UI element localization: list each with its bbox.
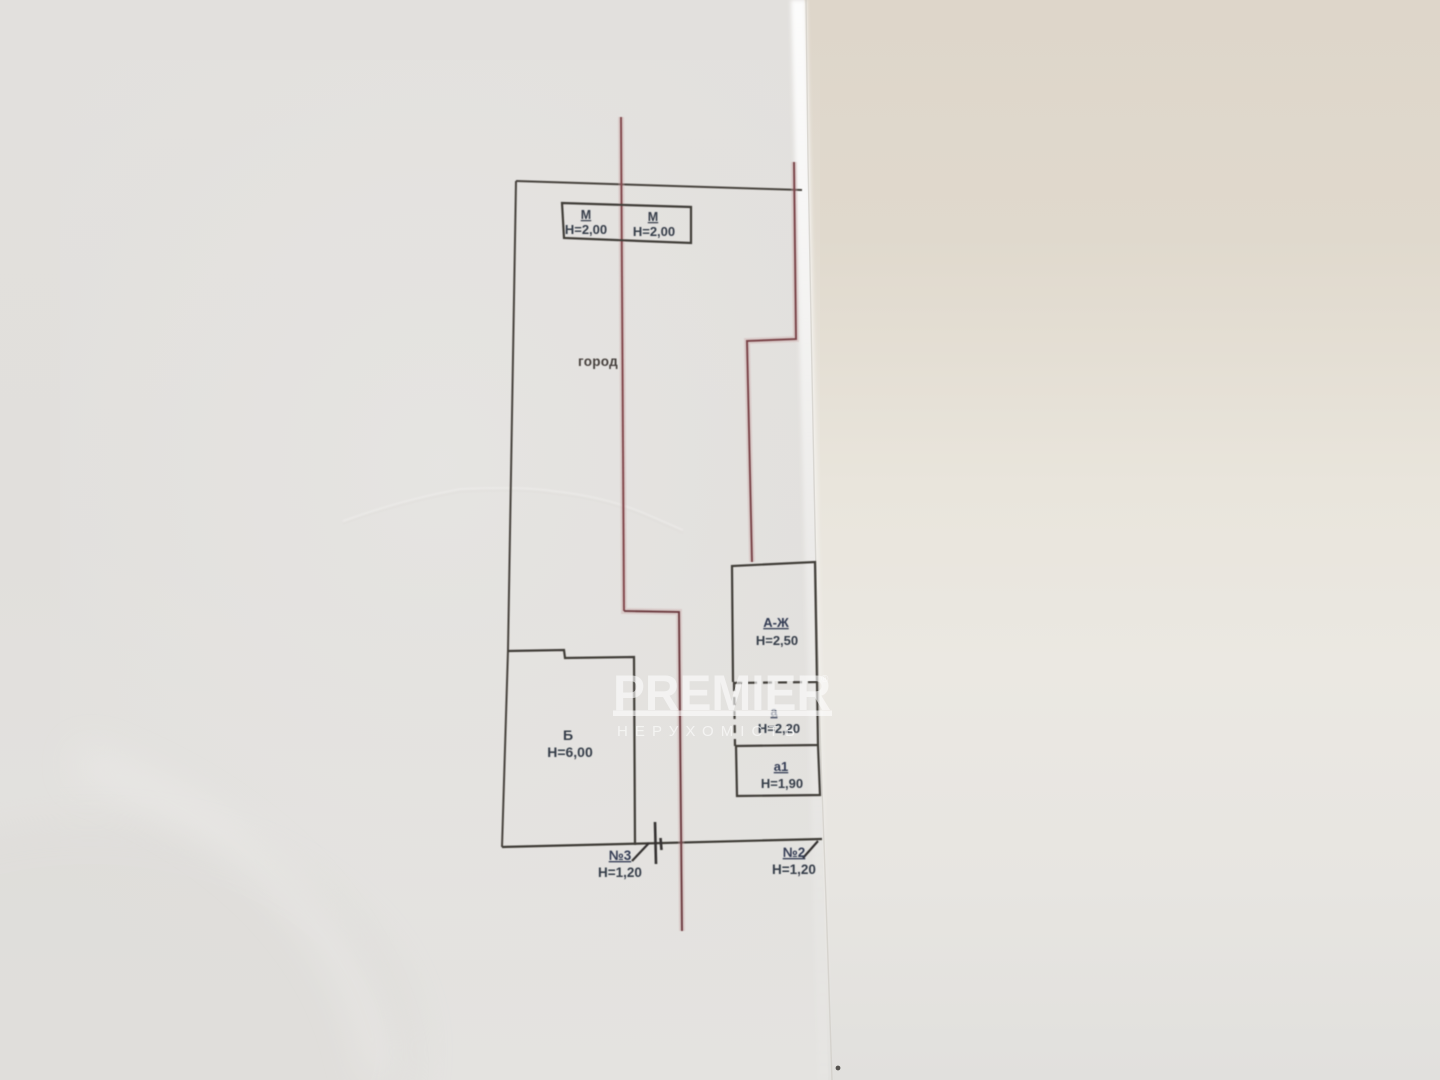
svg-text:Н=2,50: Н=2,50 [756, 633, 798, 648]
svg-text:Н=1,20: Н=1,20 [772, 862, 816, 877]
svg-text:Н=2,00: Н=2,00 [633, 224, 675, 239]
svg-text:М: М [581, 208, 591, 222]
svg-text:город: город [578, 354, 618, 369]
svg-text:М: М [648, 210, 658, 224]
svg-text:Н=6,00: Н=6,00 [547, 744, 593, 760]
svg-text:а1: а1 [774, 759, 788, 774]
svg-text:НЕРУХОМІСТЬ: НЕРУХОМІСТЬ [617, 723, 795, 740]
svg-text:№3: №3 [609, 848, 632, 863]
svg-text:®: ® [821, 674, 829, 685]
svg-text:Н=2,00: Н=2,00 [565, 222, 607, 237]
svg-text:Н=1,90: Н=1,90 [761, 776, 803, 791]
svg-text:Б: Б [563, 727, 573, 743]
svg-text:Н=1,20: Н=1,20 [598, 865, 642, 880]
svg-text:А-Ж: А-Ж [763, 615, 789, 630]
svg-text:№2: №2 [783, 845, 806, 860]
